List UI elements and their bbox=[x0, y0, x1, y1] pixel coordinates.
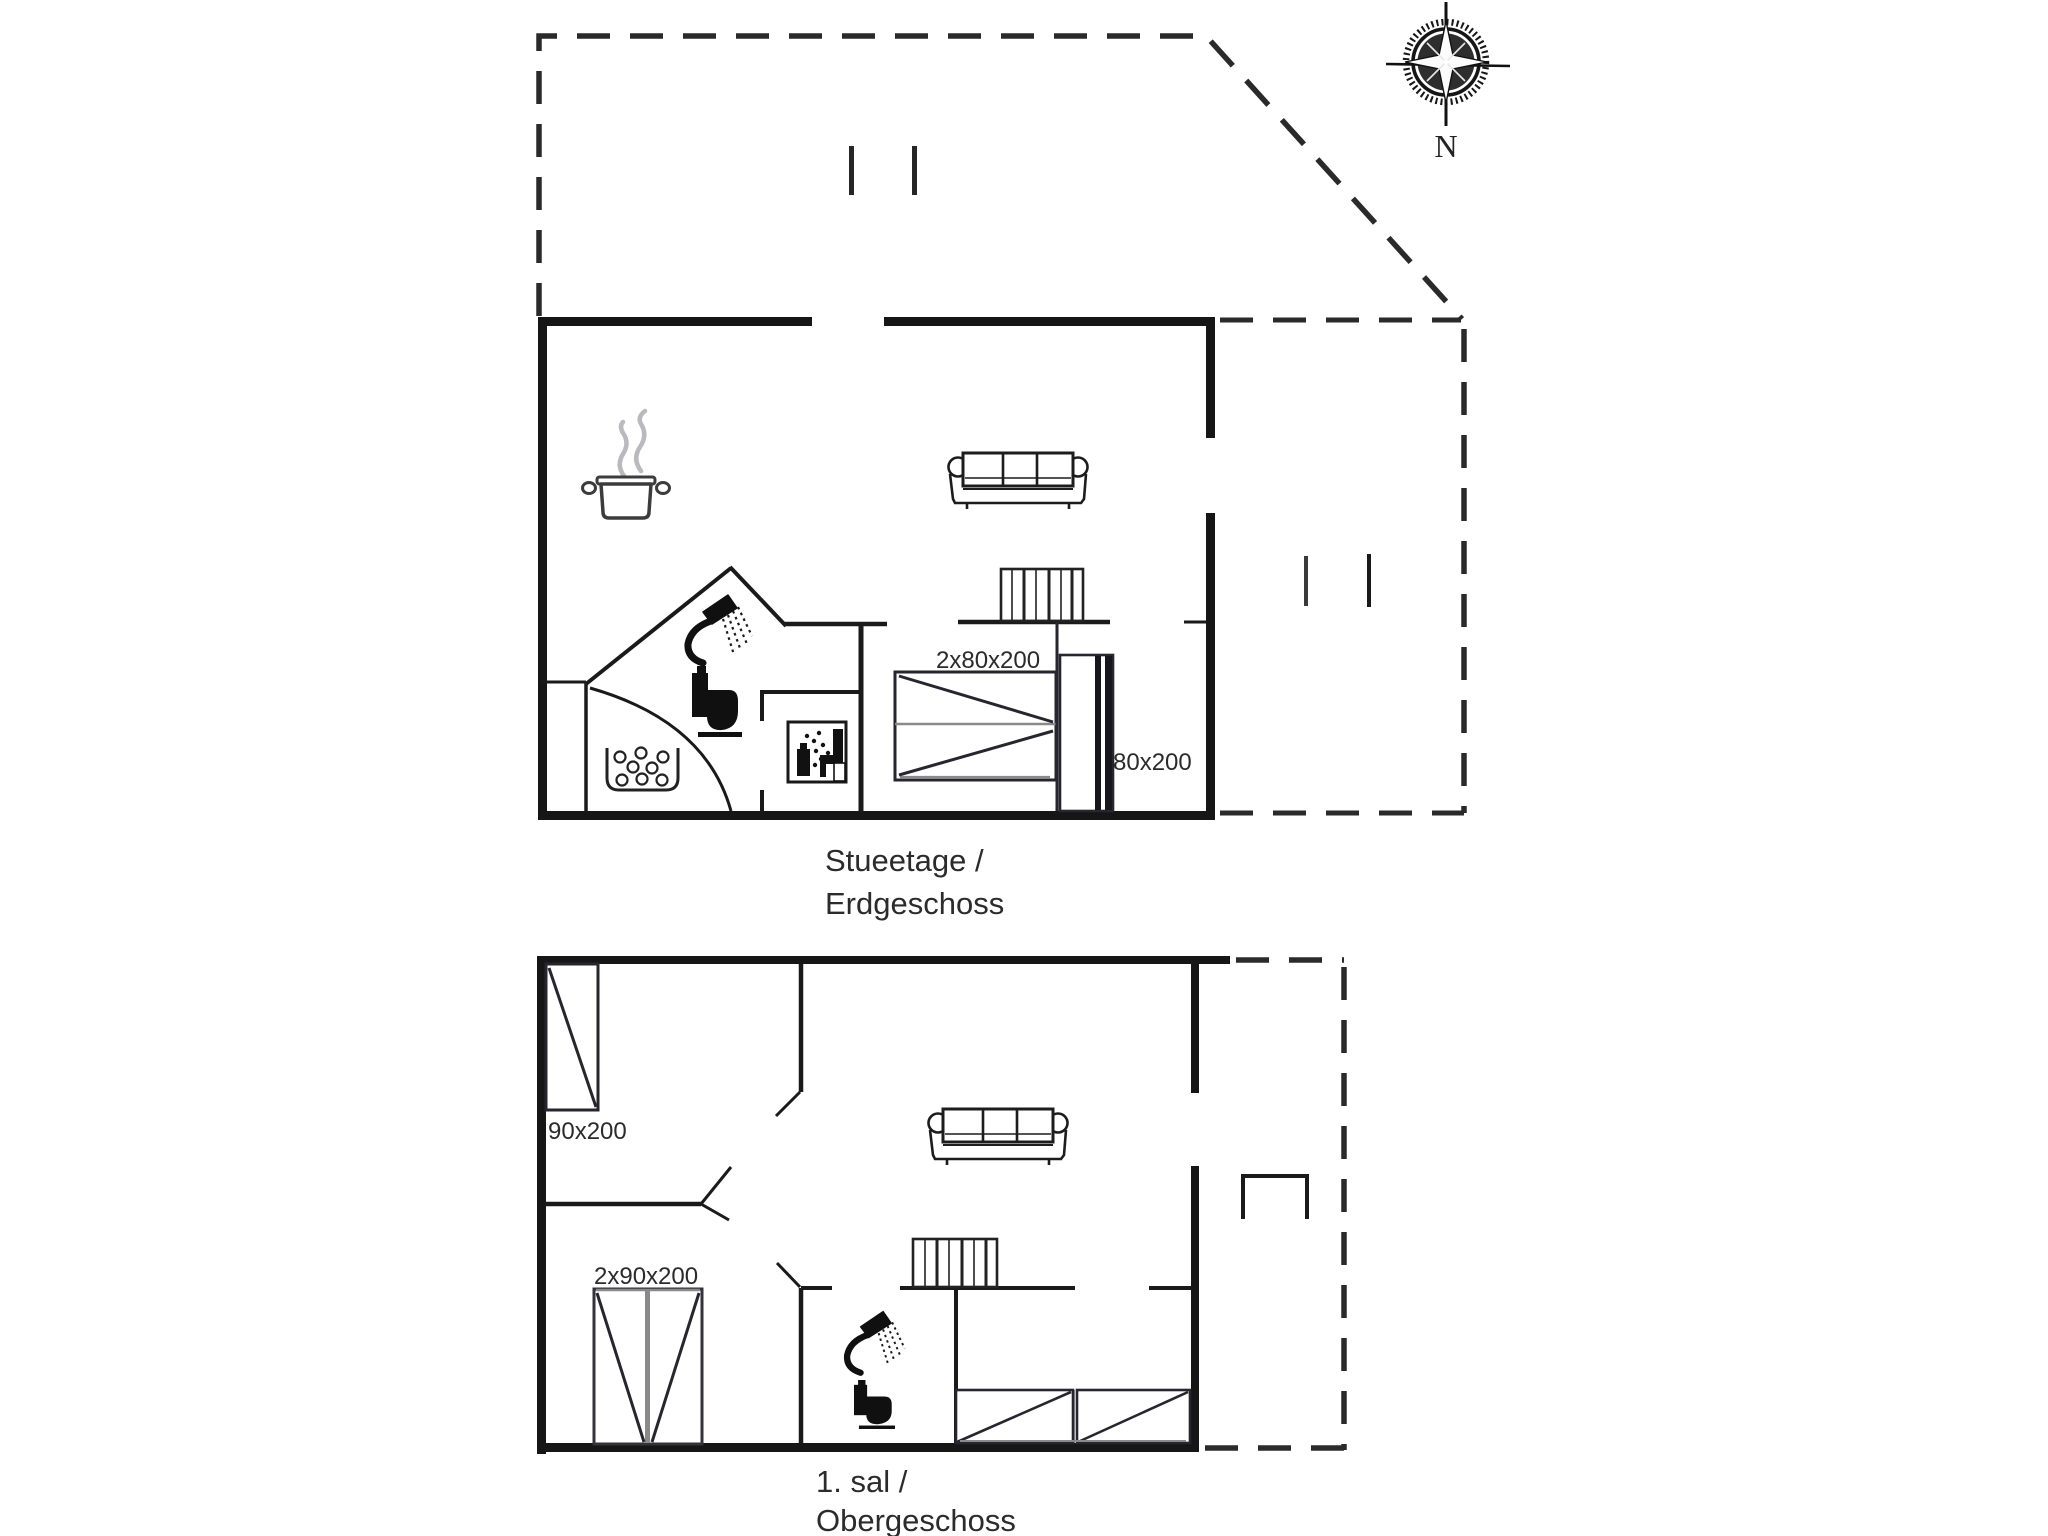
svg-text:Stueetage /: Stueetage / bbox=[825, 843, 984, 878]
svg-text:1. sal /: 1. sal / bbox=[816, 1464, 908, 1499]
svg-text:90x200: 90x200 bbox=[548, 1118, 627, 1145]
svg-text:2x80x200: 2x80x200 bbox=[936, 647, 1040, 674]
svg-text:N: N bbox=[1434, 128, 1457, 164]
svg-text:2x90x200: 2x90x200 bbox=[594, 1263, 698, 1290]
svg-text:Erdgeschoss: Erdgeschoss bbox=[825, 886, 1004, 921]
svg-text:80x200: 80x200 bbox=[1113, 749, 1192, 776]
svg-text:Obergeschoss: Obergeschoss bbox=[816, 1503, 1016, 1536]
